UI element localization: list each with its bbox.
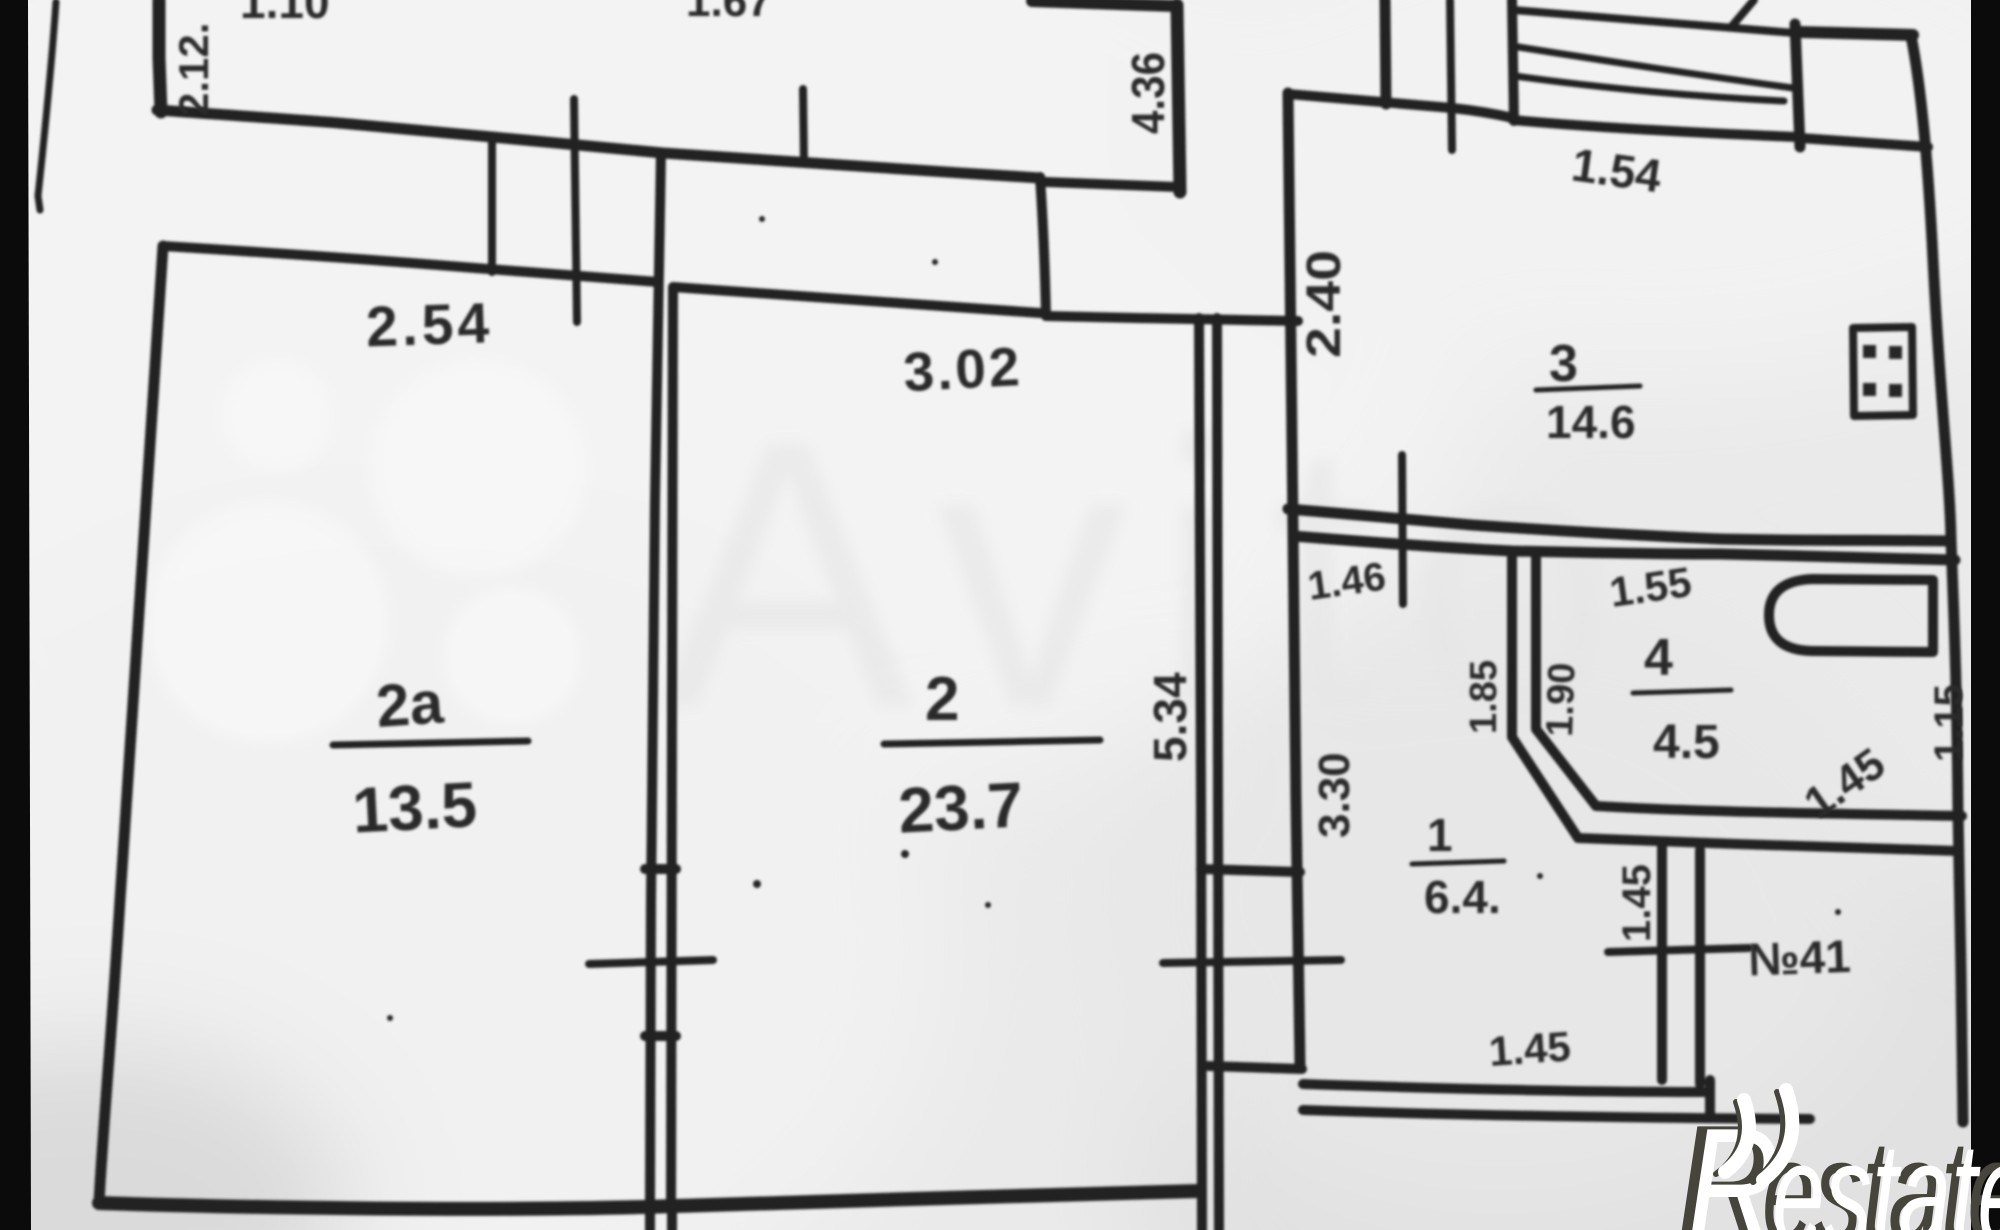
svg-text:2.40: 2.40 [1298,250,1351,358]
svg-text:4: 4 [1644,629,1673,687]
svg-text:№41: №41 [1747,930,1851,986]
svg-text:1.15: 1.15 [1927,684,1971,762]
svg-text:14.6: 14.6 [1546,396,1636,448]
svg-text:1.85: 1.85 [1463,660,1505,734]
svg-text:23.7: 23.7 [897,768,1025,846]
svg-text:1.90: 1.90 [1539,662,1584,737]
svg-text:1.45: 1.45 [1487,1022,1572,1075]
svg-text:2.12.: 2.12. [170,23,217,116]
svg-text:2: 2 [925,665,959,734]
svg-text:3.30: 3.30 [1310,752,1359,838]
svg-text:1: 1 [1427,809,1453,861]
svg-text:2.54: 2.54 [365,291,494,359]
svg-text:1.45: 1.45 [1615,864,1659,942]
svg-text:4.5: 4.5 [1653,716,1720,769]
svg-text:4.36: 4.36 [1122,52,1174,134]
svg-text:5.34: 5.34 [1144,672,1196,762]
svg-text:1.67: 1.67 [686,0,772,26]
svg-text:1.10: 1.10 [240,0,330,28]
svg-text:6.4.: 6.4. [1424,871,1501,923]
svg-text:estate: estate [1772,1112,2000,1230]
svg-text:13.5: 13.5 [351,768,479,846]
svg-text:3: 3 [1549,335,1578,393]
svg-text:3.02: 3.02 [902,335,1024,403]
svg-text:2a: 2a [374,668,446,740]
